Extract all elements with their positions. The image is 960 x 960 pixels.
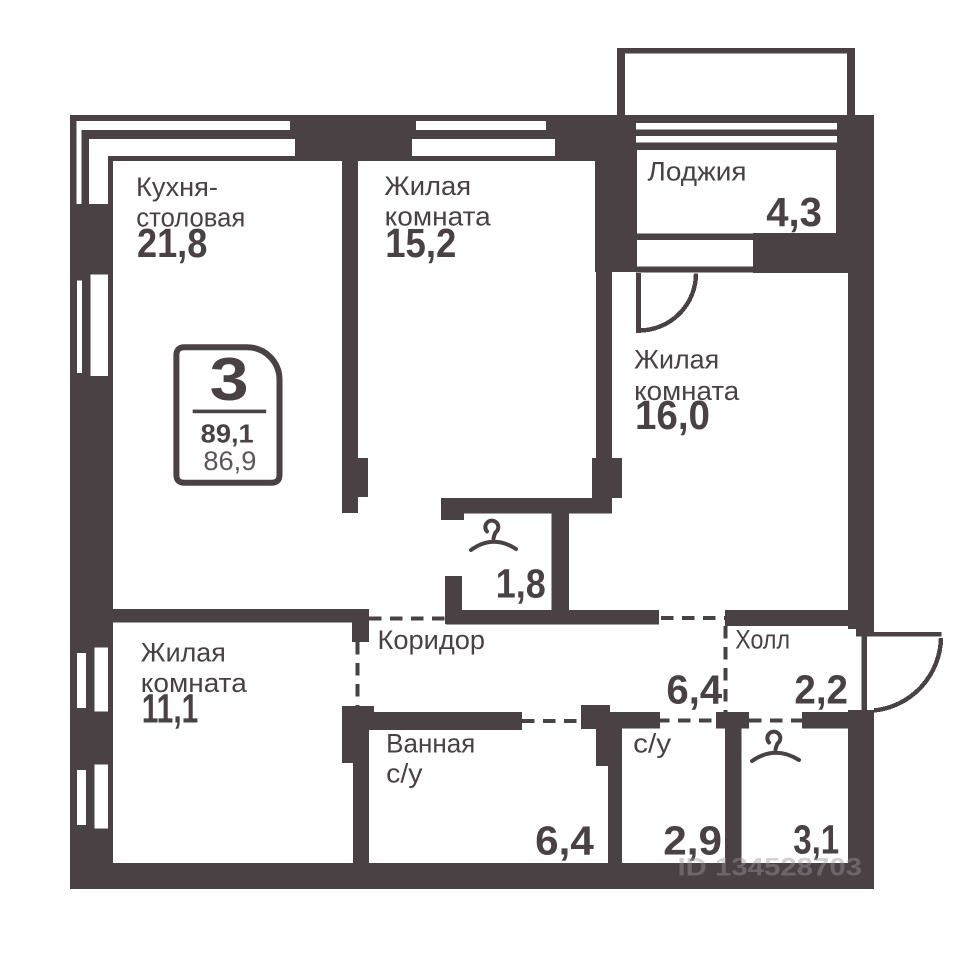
svg-text:3: 3 — [210, 346, 249, 413]
svg-text:Лоджия: Лоджия — [648, 157, 747, 187]
svg-text:с/у: с/у — [633, 729, 672, 759]
svg-text:21,8: 21,8 — [137, 220, 207, 266]
svg-text:4,3: 4,3 — [766, 189, 822, 235]
svg-text:Жилая: Жилая — [384, 171, 471, 201]
svg-text:86,9: 86,9 — [203, 446, 256, 476]
svg-text:Коридор: Коридор — [378, 625, 486, 655]
svg-text:Холл: Холл — [735, 625, 790, 655]
svg-text:16,0: 16,0 — [635, 392, 710, 438]
svg-text:6,4: 6,4 — [535, 817, 594, 863]
svg-text:89,1: 89,1 — [201, 420, 254, 448]
svg-text:Ванная: Ванная — [386, 728, 475, 758]
svg-text:Жилая: Жилая — [141, 638, 226, 668]
svg-text:6,4: 6,4 — [666, 666, 722, 712]
svg-text:1,8: 1,8 — [496, 561, 546, 607]
svg-text:2,2: 2,2 — [794, 666, 848, 712]
svg-text:Кухня-: Кухня- — [136, 172, 218, 202]
svg-text:Жилая: Жилая — [634, 344, 719, 374]
svg-text:ID 134528703: ID 134528703 — [678, 854, 863, 882]
svg-text:11,1: 11,1 — [142, 686, 199, 732]
svg-text:15,2: 15,2 — [385, 220, 456, 266]
svg-text:с/у: с/у — [386, 759, 423, 789]
